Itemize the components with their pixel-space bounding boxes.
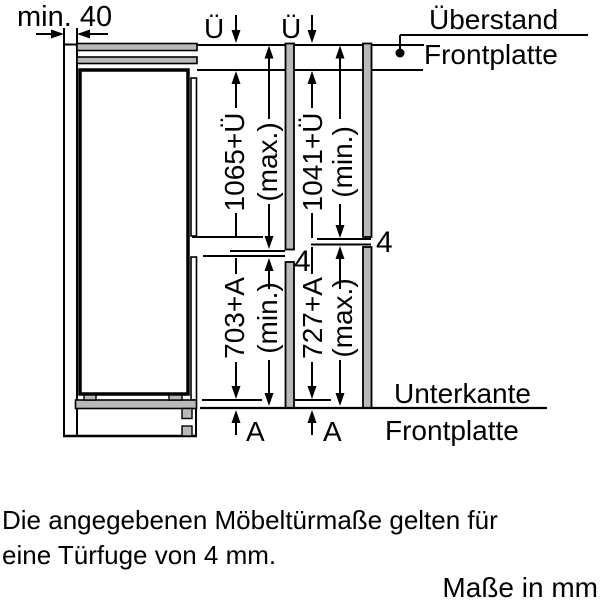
upper-door-max-value: 1065+Ü [219, 113, 250, 212]
min-clearance-dimension: min. 40 [17, 1, 112, 39]
dim-lower-min-bottom-arrow [265, 393, 274, 406]
upper-door-min-value: 1041+Ü [297, 113, 328, 212]
base-foot-lower [182, 426, 192, 436]
appliance-body [80, 70, 188, 394]
dim-lower-max-bottom-arrow [336, 393, 345, 406]
dim-inner-right-bottom-arrow [308, 386, 317, 399]
base-tab-left [84, 395, 96, 400]
bottom-edge-line2: Frontplatte [385, 415, 519, 446]
appliance-door-upper [191, 78, 197, 236]
base-foot-upper [182, 409, 192, 419]
overhang-down-arrow-head-right [308, 30, 317, 43]
lower-door-min-value: 703+A [219, 277, 250, 359]
overhang-leader-dot [396, 49, 405, 58]
front-panel-max-lower [286, 262, 295, 408]
lower-door-max-value: 727+A [297, 277, 328, 359]
dim-upper-min-top-arrow [336, 46, 345, 59]
upper-door-min-qualifier: (min.) [327, 126, 358, 198]
overhang-up-arrow-head-right [308, 71, 317, 84]
door-gap-value-left: 4 [294, 245, 311, 278]
overhang-callout-line2: Frontplatte [424, 39, 558, 70]
upper-door-max-qualifier: (max.) [252, 122, 283, 201]
overhang-callout-line1: Überstand [429, 4, 558, 35]
front-panel-max-upper [286, 44, 295, 250]
bottom-edge-callout: Unterkante Frontplatte [385, 378, 531, 446]
note-line1: Die angegebenen Möbeltürmaße gelten für [2, 505, 498, 535]
door-gap-lines [192, 237, 371, 256]
dim-lower-max-top-arrow [336, 246, 345, 259]
dim-upper-max-top-arrow [265, 46, 274, 59]
dim-upper-max-bottom-arrow [265, 236, 274, 249]
top-panel-strip-2 [77, 57, 197, 64]
door-gap-value-right: 4 [376, 226, 393, 259]
lower-door-min-qualifier: (min.) [252, 282, 283, 354]
bottom-edge-line1: Unterkante [394, 378, 531, 409]
cabinet-section [63, 28, 197, 437]
appliance-door-lower [191, 257, 197, 400]
front-panel-min-lower [363, 247, 372, 408]
recess-up-arrow-head-right [308, 410, 317, 423]
recess-up-arrow-head-left [232, 410, 241, 423]
overhang-down-arrow-head-left [232, 30, 241, 43]
dim-upper-min-bottom-arrow [336, 225, 345, 238]
overhang-up-arrow-head-left [232, 71, 241, 84]
overhang-callout: Überstand Frontplatte [396, 4, 589, 70]
dim-lower-min-top-arrow [265, 258, 274, 271]
base-tab-right [169, 395, 182, 400]
top-panel-strip-1 [77, 44, 197, 51]
base-plinth-bar [76, 400, 197, 409]
front-panel-min-upper [363, 44, 372, 238]
overhang-dimension-left: Ü [204, 13, 241, 108]
door-dimension-diagram: min. 40 Ü Ü Überstand Frontplatte [0, 0, 600, 600]
overhang-symbol-left: Ü [204, 13, 224, 44]
recess-dimension-right: A [308, 410, 343, 447]
overhang-symbol-right: Ü [281, 13, 301, 44]
note-line2: eine Türfuge von 4 mm. [2, 540, 276, 570]
recess-symbol-left: A [246, 416, 265, 447]
recess-symbol-right: A [323, 416, 342, 447]
dim-inner-left-bottom-arrow [232, 386, 241, 399]
min-clearance-label: min. 40 [17, 1, 112, 33]
units-label: Maße in mm [442, 572, 598, 600]
installation-diagram-page: min. 40 Ü Ü Überstand Frontplatte [0, 0, 600, 600]
recess-dimension-left: A [232, 410, 266, 447]
lower-door-max-qualifier: (max.) [327, 278, 358, 357]
